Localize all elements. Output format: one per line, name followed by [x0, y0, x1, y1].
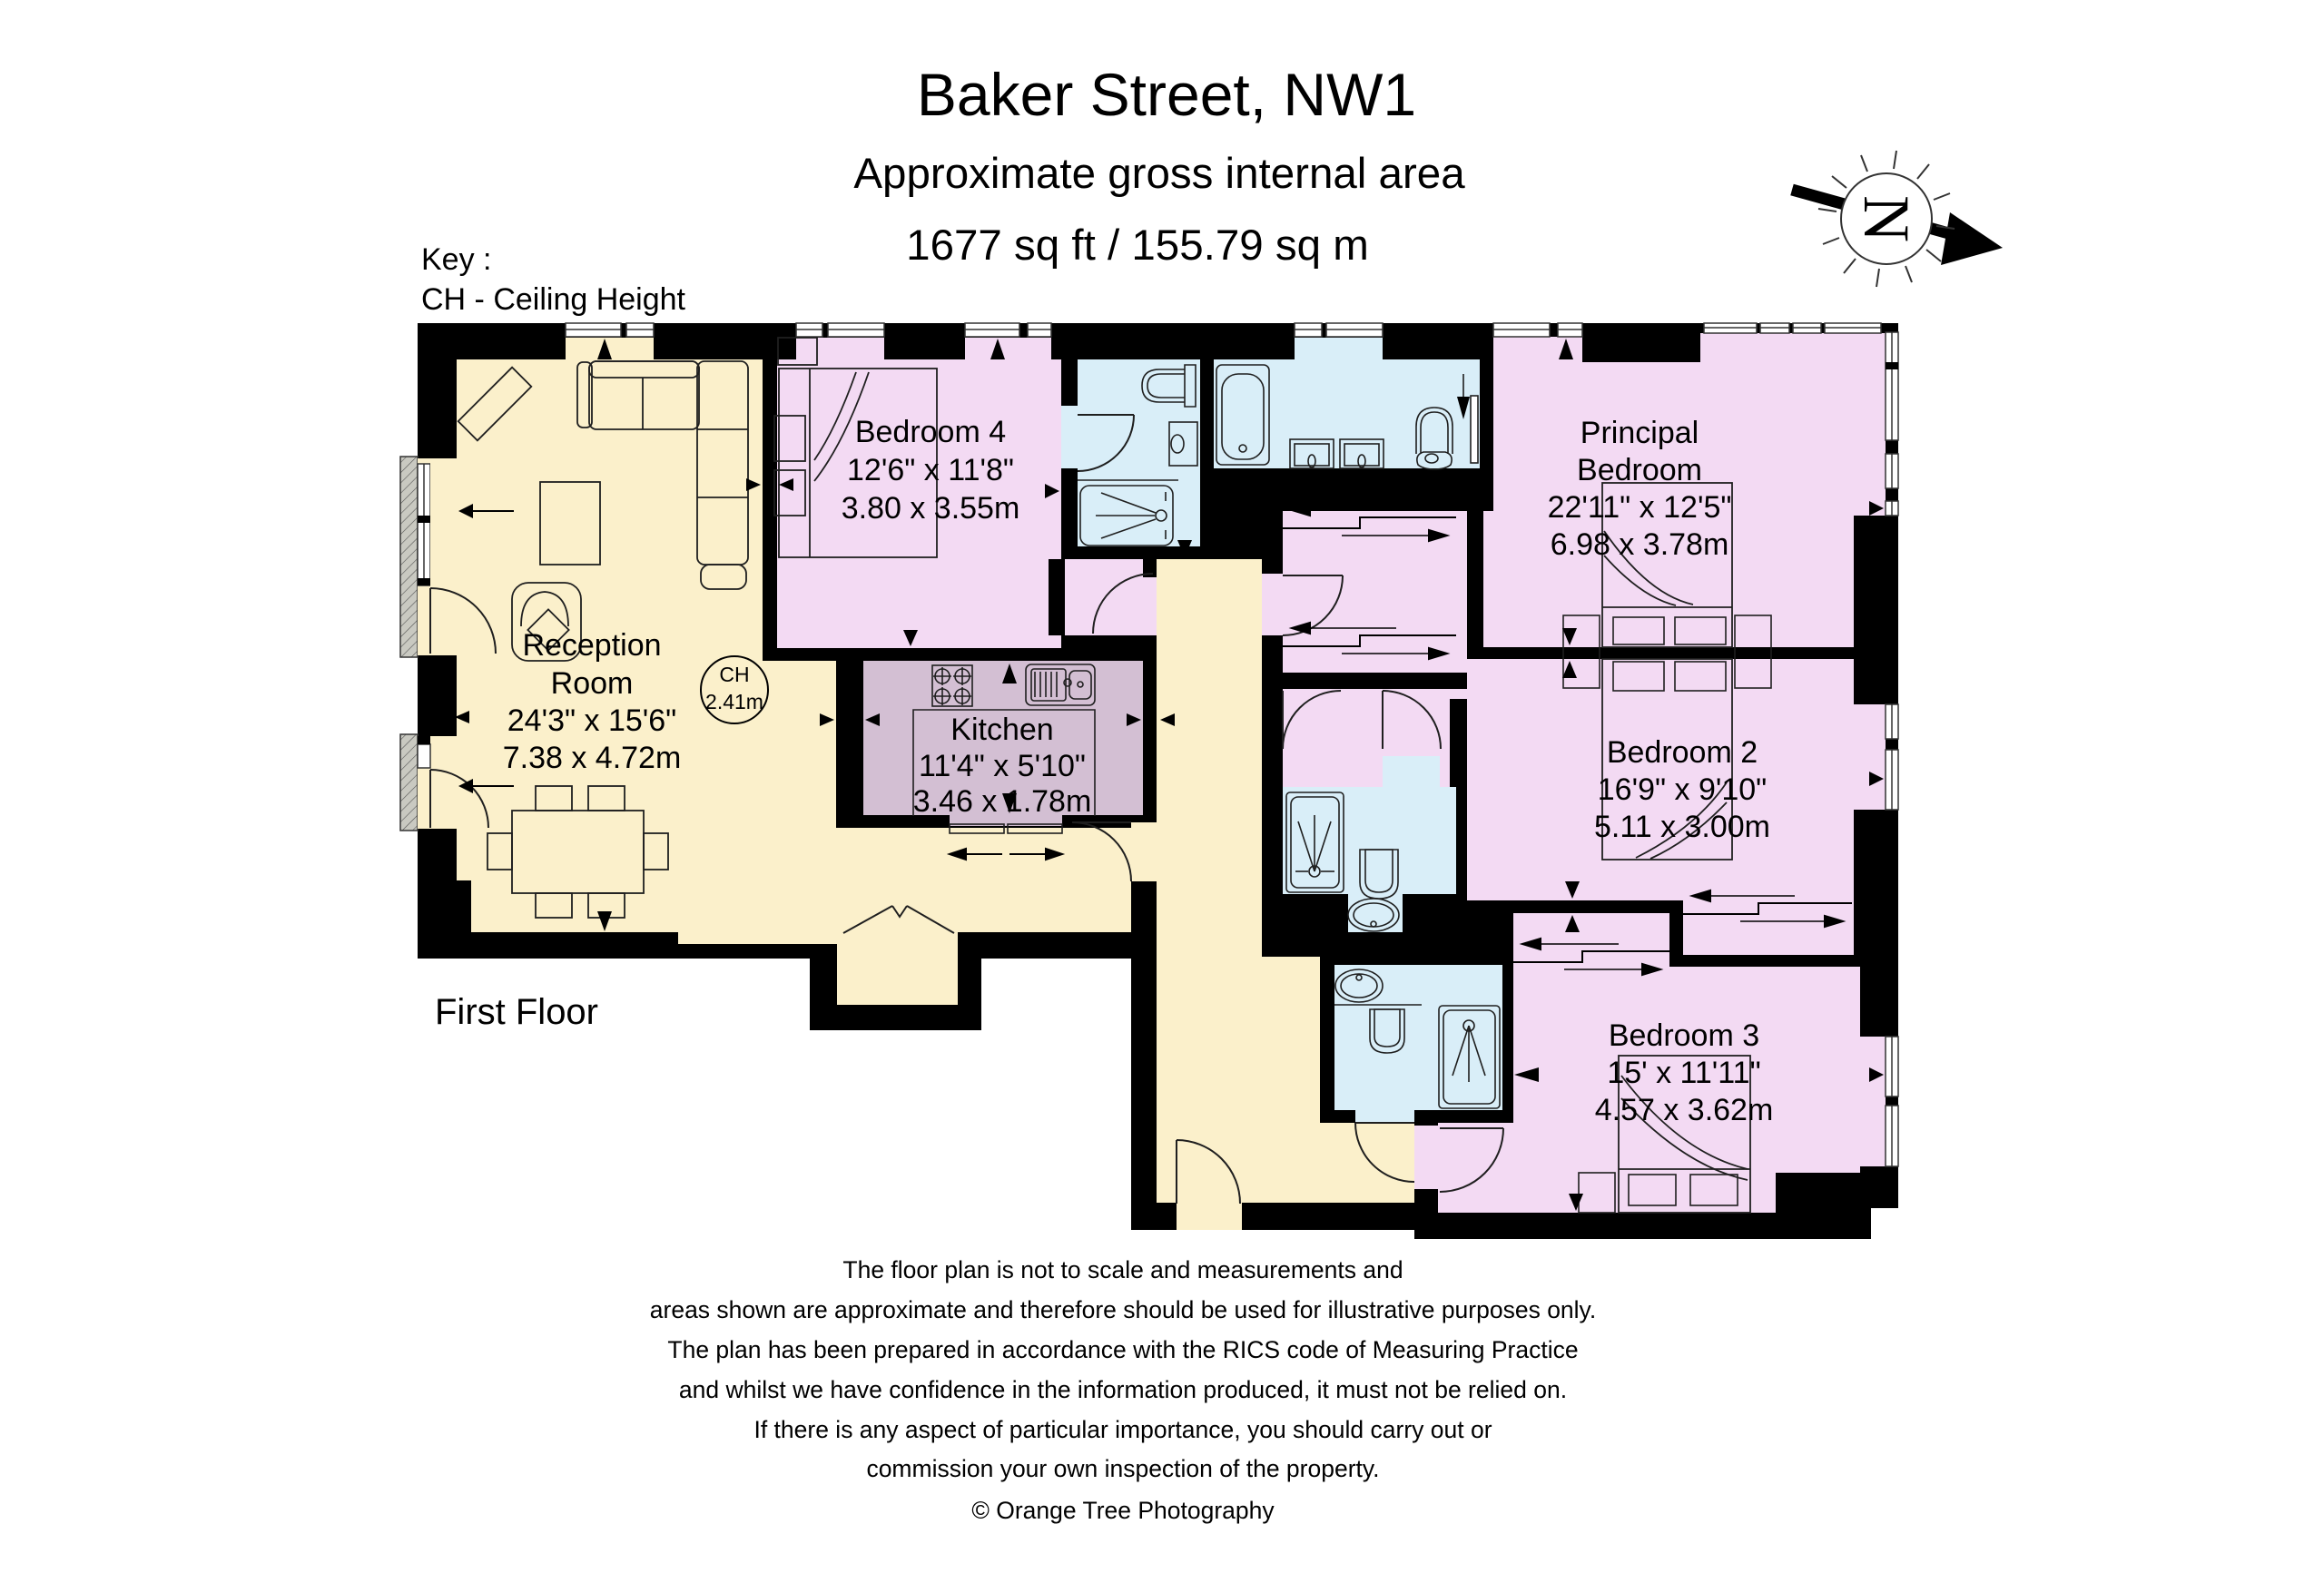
svg-text:6.98 x 3.78m: 6.98 x 3.78m — [1551, 527, 1729, 562]
svg-text:22'11" x 12'5": 22'11" x 12'5" — [1548, 490, 1732, 525]
svg-text:areas shown are approximate an: areas shown are approximate and therefor… — [650, 1296, 1596, 1323]
svg-text:7.38 x 4.72m: 7.38 x 4.72m — [503, 741, 682, 775]
svg-text:Room: Room — [551, 666, 634, 701]
svg-text:16'9" x 9'10": 16'9" x 9'10" — [1598, 772, 1767, 807]
svg-text:11'4" x 5'10": 11'4" x 5'10" — [919, 749, 1086, 783]
svg-text:Key :: Key : — [421, 242, 491, 277]
svg-text:12'6" x 11'8": 12'6" x 11'8" — [847, 453, 1014, 487]
svg-text:Kitchen: Kitchen — [950, 713, 1053, 747]
svg-text:CH - Ceiling Height: CH - Ceiling Height — [421, 282, 686, 317]
svg-text:5.11 x 3.00m: 5.11 x 3.00m — [1594, 810, 1770, 844]
svg-text:Bedroom 4: Bedroom 4 — [855, 415, 1006, 449]
svg-text:The plan has been prepared in: The plan has been prepared in accordance… — [667, 1336, 1578, 1363]
svg-text:Baker Street, NW1: Baker Street, NW1 — [917, 61, 1416, 128]
svg-text:commission your own inspection: commission your own inspection of the pr… — [866, 1455, 1379, 1482]
svg-text:24'3" x 15'6": 24'3" x 15'6" — [507, 703, 676, 738]
svg-text:Reception: Reception — [522, 628, 661, 663]
svg-text:Bedroom 3: Bedroom 3 — [1609, 1018, 1759, 1053]
svg-text:Principal: Principal — [1581, 416, 1699, 450]
svg-text:Bedroom 2: Bedroom 2 — [1607, 735, 1758, 770]
svg-text:If there is any aspect of part: If there is any aspect of particular imp… — [753, 1416, 1492, 1443]
svg-text:and whilst we have confidence: and whilst we have confidence in the inf… — [679, 1376, 1567, 1403]
svg-text:4.57 x 3.62m: 4.57 x 3.62m — [1595, 1093, 1774, 1127]
svg-text:CH: CH — [719, 663, 749, 686]
svg-text:2.41m: 2.41m — [705, 690, 763, 713]
svg-text:Approximate gross internal are: Approximate gross internal area — [853, 150, 1465, 198]
svg-text:1677 sq ft / 155.79 sq m: 1677 sq ft / 155.79 sq m — [906, 221, 1369, 270]
svg-text:First Floor: First Floor — [435, 992, 598, 1032]
svg-text:3.46 x 1.78m: 3.46 x 1.78m — [913, 784, 1092, 819]
svg-text:The floor plan is not to scale: The floor plan is not to scale and measu… — [842, 1256, 1403, 1283]
svg-text:3.80 x 3.55m: 3.80 x 3.55m — [842, 491, 1020, 526]
svg-text:15' x 11'11": 15' x 11'11" — [1607, 1056, 1760, 1090]
svg-text:N: N — [1850, 195, 1923, 242]
svg-text:© Orange Tree Photography: © Orange Tree Photography — [971, 1497, 1275, 1524]
svg-text:Bedroom: Bedroom — [1577, 453, 1702, 487]
